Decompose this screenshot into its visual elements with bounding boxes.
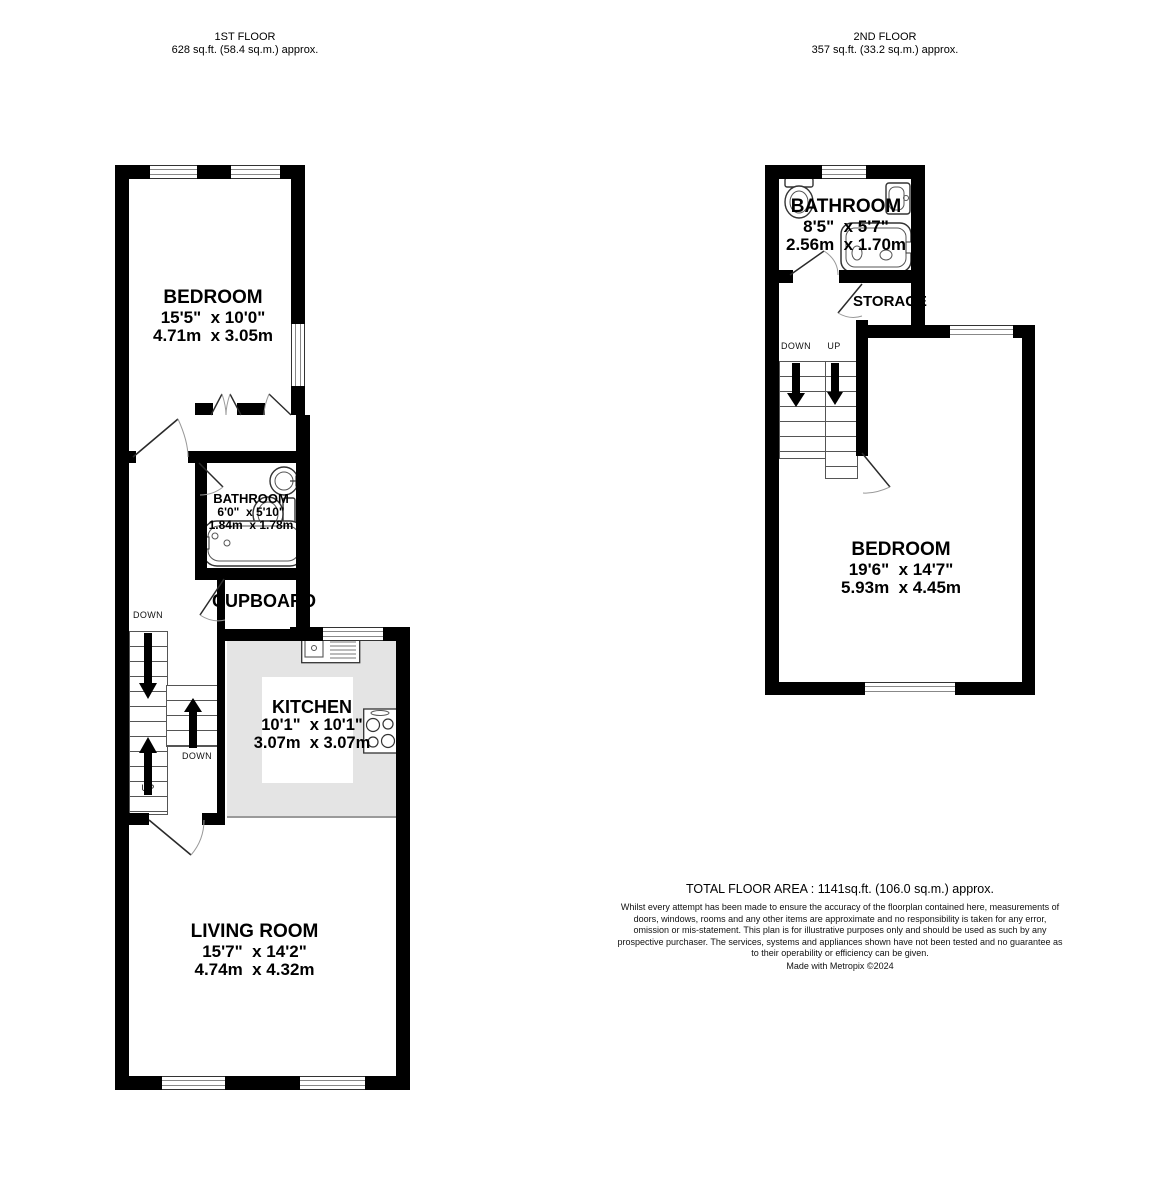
credit-text: Made with Metropix ©2024 xyxy=(600,961,1080,973)
window xyxy=(822,165,866,179)
door-arc xyxy=(262,391,293,417)
door-arc xyxy=(194,574,230,624)
floorplan-canvas: 1ST FLOOR 628 sq.ft. (58.4 sq.m.) approx… xyxy=(0,0,1158,1200)
total-floor-area: TOTAL FLOOR AREA : 1141sq.ft. (106.0 sq.… xyxy=(600,882,1080,896)
footer: TOTAL FLOOR AREA : 1141sq.ft. (106.0 sq.… xyxy=(600,882,1080,972)
kitchen-living-divider xyxy=(227,816,396,818)
wall xyxy=(382,627,410,641)
door-arc xyxy=(128,413,190,461)
room-name: LIVING ROOM xyxy=(122,922,387,943)
stairs-arrow-down xyxy=(139,633,157,699)
second-floor-area: 357 sq.ft. (33.2 sq.m.) approx. xyxy=(735,44,1035,57)
room-dim-metric: 3.07m x 3.07m xyxy=(227,735,397,753)
room-name: BEDROOM xyxy=(795,540,1007,561)
wall xyxy=(856,320,868,456)
room-dim-metric: 4.74m x 4.32m xyxy=(122,961,387,979)
room-name: BEDROOM xyxy=(115,288,311,309)
door-arc xyxy=(833,281,865,319)
wall xyxy=(115,165,129,1090)
room-dim-imperial: 19'6" x 14'7" xyxy=(795,561,1007,579)
window xyxy=(300,1076,365,1090)
wall xyxy=(225,629,291,641)
wall xyxy=(765,682,865,695)
stairs-label-down: DOWN xyxy=(177,751,217,761)
first-floor-name: 1ST FLOOR xyxy=(95,31,395,44)
wall xyxy=(1012,325,1035,338)
stairs-arrow-up xyxy=(184,698,202,748)
door-arc xyxy=(787,247,841,277)
room-dim-imperial: 15'5" x 10'0" xyxy=(115,309,311,327)
wall xyxy=(224,1076,301,1090)
living-room-label: LIVING ROOM 15'7" x 14'2" 4.74m x 4.32m xyxy=(122,922,387,979)
stairs-label-up: UP xyxy=(822,341,846,351)
first-floor-area: 628 sq.ft. (58.4 sq.m.) approx. xyxy=(95,44,395,57)
window xyxy=(950,325,1013,338)
stairs-label-down: DOWN xyxy=(777,341,815,351)
window xyxy=(291,324,305,386)
wall xyxy=(129,1076,163,1090)
stairs-arrow-up xyxy=(139,737,157,795)
room-dim-imperial: 8'5" x 5'7" xyxy=(770,218,922,236)
stairs-arrow-down xyxy=(827,363,843,405)
door-arc xyxy=(196,461,228,497)
first-floor-title: 1ST FLOOR 628 sq.ft. (58.4 sq.m.) approx… xyxy=(95,31,395,57)
door-arc xyxy=(857,449,899,495)
window xyxy=(162,1076,225,1090)
room-dim-imperial: 10'1" x 10'1" xyxy=(227,717,397,735)
wall xyxy=(866,325,952,338)
wall xyxy=(765,165,779,695)
room-dim-metric: 5.93m x 4.45m xyxy=(795,579,1007,597)
room-dim-metric: 4.71m x 3.05m xyxy=(115,327,311,345)
double-door-arc xyxy=(209,391,243,417)
wall xyxy=(911,165,925,337)
wall xyxy=(296,415,310,641)
wall xyxy=(290,627,324,641)
stairs-arrow-down xyxy=(787,363,805,407)
window xyxy=(150,165,197,179)
window xyxy=(323,627,383,641)
room-name: BATHROOM xyxy=(770,197,922,218)
bedroom-label: BEDROOM 19'6" x 14'7" 5.93m x 4.45m xyxy=(795,540,1007,597)
room-name: KITCHEN xyxy=(227,698,397,717)
stairs-label-down: DOWN xyxy=(129,610,167,620)
window xyxy=(231,165,280,179)
wall xyxy=(953,682,1035,695)
room-dim-metric: 1.84m x 1.78m xyxy=(195,519,307,532)
kitchen-label: KITCHEN 10'1" x 10'1" 3.07m x 3.07m xyxy=(227,698,397,753)
bedroom-label: BEDROOM 15'5" x 10'0" 4.71m x 3.05m xyxy=(115,288,311,345)
wall xyxy=(291,386,305,415)
wall xyxy=(291,179,305,324)
wall xyxy=(364,1076,396,1090)
second-floor-title: 2ND FLOOR 357 sq.ft. (33.2 sq.m.) approx… xyxy=(735,31,1035,57)
wall xyxy=(1022,338,1035,695)
wall xyxy=(396,641,410,1090)
window xyxy=(865,682,955,695)
second-floor-name: 2ND FLOOR xyxy=(735,31,1035,44)
bathroom-label: BATHROOM 6'0" x 5'10" 1.84m x 1.78m xyxy=(195,492,307,532)
room-dim-imperial: 15'7" x 14'2" xyxy=(122,943,387,961)
bathroom-label: BATHROOM 8'5" x 5'7" 2.56m x 1.70m xyxy=(770,197,922,254)
door-arc xyxy=(146,815,208,861)
disclaimer-text: Whilst every attempt has been made to en… xyxy=(617,902,1063,960)
